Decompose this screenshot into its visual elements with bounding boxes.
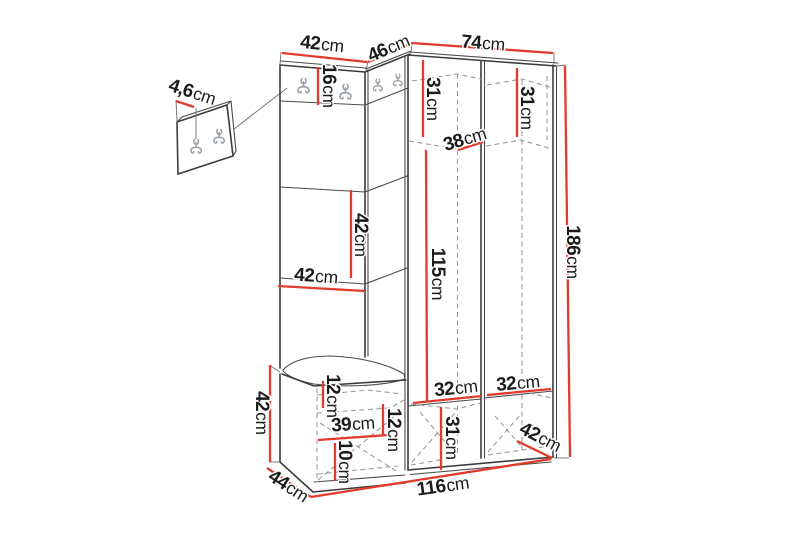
diagram-svg: 4,6cm 42cm 46cm 74cm 16cm 31cm 31cm 38cm… [0, 0, 800, 533]
dim-label-corner-panel-width: 46cm [364, 30, 413, 67]
wardrobe-top-edge [408, 55, 556, 66]
callout-line [234, 88, 287, 129]
dim-label-left-shelf-spacing: 42cm [350, 213, 371, 257]
dim-label-wall-panel-thickness: 4,6cm [166, 75, 219, 110]
dim-label-wardrobe-width: 74cm [461, 31, 506, 55]
bench-hidden-floor [318, 466, 398, 474]
dim-label-left-panel-width: 42cm [299, 31, 345, 57]
coat-hook-icon [340, 84, 351, 98]
coat-hook-icon [373, 79, 382, 91]
dim-label-total-width: 116cm [415, 472, 470, 501]
dim-label-bench-upper-section: 12cm [322, 374, 343, 418]
dim-label-wardrobe-lower-section-height: 31cm [441, 416, 462, 460]
dim-label-wardrobe-right-lower-width: 32cm [495, 371, 540, 396]
left-panel-and-corner [280, 51, 411, 368]
dim-label-left-shelf-width: 42cm [294, 264, 339, 288]
dim-label-wardrobe-left-upper-height: 31cm [422, 77, 443, 121]
dim-label-bench-depth: 44cm [264, 466, 312, 508]
bench-plinth-edge [314, 475, 405, 482]
dim-line-hanging-space-height [426, 150, 427, 401]
hidden-floor-diag-right-1 [488, 414, 521, 452]
dim-line-left-shelf-width [278, 286, 365, 291]
dim-label-bench-lower-section: 10cm [334, 440, 355, 484]
coat-hook-icon [298, 78, 309, 92]
dim-label-bench-height: 42cm [251, 391, 272, 435]
hidden-lower-shelf-left [411, 403, 480, 409]
dim-label-wardrobe-depth: 42cm [516, 418, 565, 457]
dim-label-total-height: 186cm [562, 225, 583, 279]
dim-label-bench-right-section: 12cm [383, 408, 404, 452]
shelf-1 [280, 176, 407, 192]
dim-line-wall-panel-thickness [176, 101, 194, 107]
dim-label-wardrobe-right-upper-height: 31cm [516, 86, 537, 130]
detail-extension-line-left [176, 100, 177, 121]
coat-hook-icon [393, 74, 402, 86]
hook-strip-bottom [280, 88, 408, 105]
dim-label-hanging-space-height: 115cm [427, 248, 448, 301]
dim-line-left-panel-width [282, 53, 367, 62]
dim-label-bench-inner-width: 39cm [330, 412, 375, 436]
dimension-diagram: 4,6cm 42cm 46cm 74cm 16cm 31cm 31cm 38cm… [0, 0, 800, 533]
dim-label-hook-strip-height: 16cm [318, 64, 339, 108]
hidden-shelf-right [486, 140, 552, 149]
